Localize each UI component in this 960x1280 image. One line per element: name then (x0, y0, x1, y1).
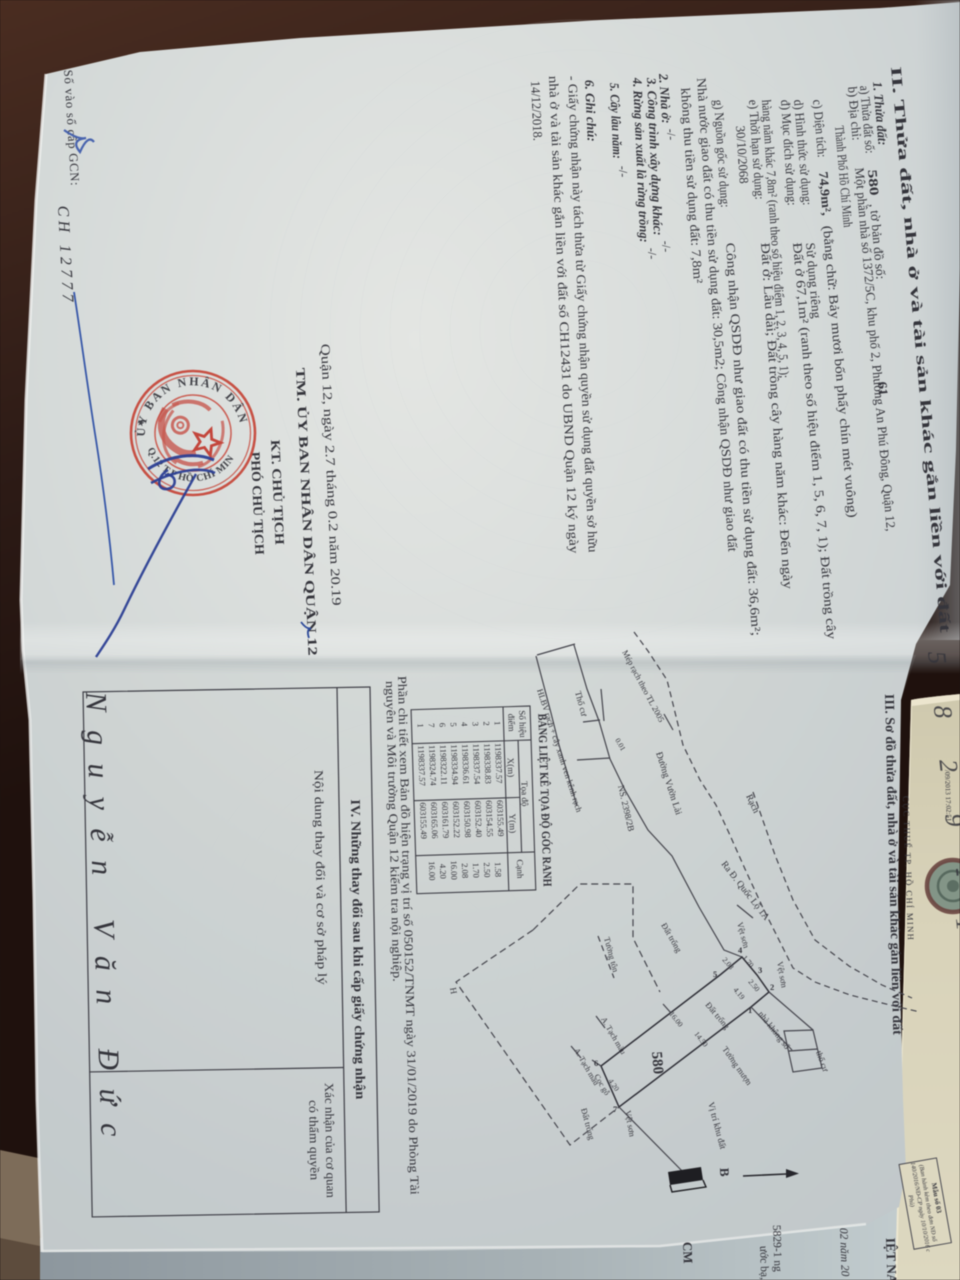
svg-text:X(m): X(m) (506, 757, 517, 777)
svg-text:5829-1 ng: 5829-1 ng (770, 1225, 784, 1273)
svg-text:603155.49: 603155.49 (418, 802, 429, 839)
svg-text:02 năm 20: 02 năm 20 (837, 1228, 851, 1277)
svg-text:4.20: 4.20 (438, 864, 448, 879)
svg-text:-/-: -/- (645, 248, 659, 260)
svg-text:Tọa độ: Tọa độ (519, 781, 530, 807)
svg-text:14/12/2018.: 14/12/2018. (528, 80, 546, 141)
svg-text:ước bạ, C: ước bạ, C (757, 1246, 771, 1280)
svg-text:603152.22: 603152.22 (451, 801, 462, 838)
svg-text:580: 580 (648, 1051, 666, 1075)
svg-text:603165.06: 603165.06 (429, 802, 440, 840)
svg-text:16.00: 16.00 (427, 861, 438, 881)
svg-text:2: 2 (481, 721, 491, 726)
svg-text:2.50: 2.50 (482, 862, 492, 877)
svg-text:3: 3 (758, 965, 762, 975)
svg-text:1198334.94: 1198334.94 (449, 744, 460, 785)
svg-text:2: 2 (770, 982, 774, 992)
svg-text:Cạnh: Cạnh (515, 859, 526, 879)
svg-text:5: 5 (713, 969, 717, 979)
svg-text:1.58: 1.58 (493, 862, 503, 877)
svg-text:6. Ghi chú:: 6. Ghi chú: (582, 79, 600, 142)
svg-text:1198337.57: 1198337.57 (416, 745, 427, 786)
svg-text:-/-: -/- (659, 240, 674, 252)
svg-text:603152.40: 603152.40 (473, 801, 484, 838)
svg-text:603150.98: 603150.98 (462, 801, 473, 838)
svg-text:3: 3 (470, 722, 480, 727)
svg-text:IỆT NAM: IỆT NAM (883, 1238, 900, 1280)
svg-text:603155.49: 603155.49 (495, 800, 506, 837)
svg-text:2.08: 2.08 (460, 863, 470, 878)
svg-text:-/-: -/- (664, 128, 679, 140)
svg-text:1198322.11: 1198322.11 (438, 745, 449, 785)
svg-text:1.70: 1.70 (471, 863, 481, 878)
svg-text:1198337.54: 1198337.54 (471, 744, 482, 785)
svg-text:-/-: -/- (616, 166, 630, 178)
svg-text:1: 1 (492, 721, 502, 726)
svg-text:1: 1 (748, 1005, 752, 1015)
svg-text:1198337.57: 1198337.57 (493, 743, 504, 784)
svg-text:16.00: 16.00 (449, 860, 460, 880)
svg-text:CM: CM (680, 1242, 696, 1264)
svg-text:1198338.83: 1198338.83 (482, 743, 493, 784)
svg-text:điểm: điểm (506, 713, 517, 731)
svg-text:có thẩm quyền: có thẩm quyền (306, 1100, 321, 1181)
svg-text:603161.79: 603161.79 (440, 802, 451, 839)
svg-text:1198336.61: 1198336.61 (460, 744, 471, 785)
svg-text:Y(m): Y(m) (507, 813, 518, 833)
svg-text:6: 6 (594, 1058, 598, 1068)
svg-text:1198324.74: 1198324.74 (427, 745, 438, 786)
svg-text:1: 1 (415, 723, 425, 728)
svg-text:Số hiệu: Số hiệu (517, 710, 528, 738)
svg-text:Xác nhận của cơ quan: Xác nhận của cơ quan (322, 1083, 338, 1199)
svg-text:5: 5 (448, 722, 458, 727)
svg-text:603154.55: 603154.55 (484, 800, 495, 837)
svg-text:B: B (717, 1168, 732, 1178)
